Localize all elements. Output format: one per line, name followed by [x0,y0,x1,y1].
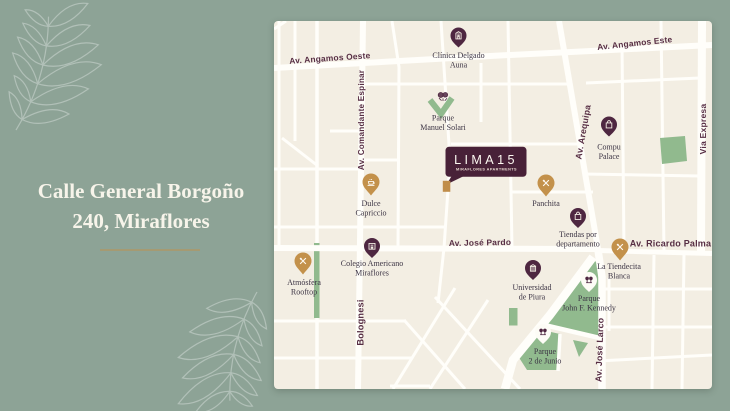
svg-text:Av. Ricardo Palma: Av. Ricardo Palma [630,239,712,249]
svg-text:Capriccio: Capriccio [355,208,386,217]
svg-text:Miraflores: Miraflores [355,268,389,277]
svg-text:Auna: Auna [450,60,468,69]
svg-text:Manuel Solari: Manuel Solari [420,123,466,132]
svg-text:Colegio Americano: Colegio Americano [341,259,403,268]
svg-text:Av. José Pardo: Av. José Pardo [449,237,512,248]
svg-text:Compu: Compu [597,143,621,152]
svg-text:Universidad: Universidad [512,283,551,292]
svg-text:Rooftop: Rooftop [291,287,317,296]
svg-text:departamento: departamento [556,239,600,248]
svg-text:Parque: Parque [432,114,455,123]
svg-text:Parque: Parque [534,347,557,356]
svg-text:Blanca: Blanca [608,271,631,280]
svg-text:Clínica Delgado: Clínica Delgado [432,51,484,60]
svg-text:Parque: Parque [578,294,601,303]
svg-text:Tiendas por: Tiendas por [559,230,597,239]
svg-text:2 de Junio: 2 de Junio [529,356,562,365]
svg-text:La Tiendecita: La Tiendecita [597,262,641,271]
svg-text:Dulce: Dulce [361,199,381,208]
svg-text:de Piura: de Piura [519,292,546,301]
svg-text:Atmósfera: Atmósfera [287,278,321,287]
svg-text:LIMA15: LIMA15 [454,153,518,167]
svg-text:Bolognesi: Bolognesi [356,299,366,345]
svg-text:Panchita: Panchita [532,199,560,208]
svg-text:Palace: Palace [599,152,620,161]
svg-text:John F. Kennedy: John F. Kennedy [562,303,616,312]
svg-text:Av. Comandante Espinar: Av. Comandante Espinar [357,69,366,170]
svg-text:Via Expresa: Via Expresa [698,104,708,155]
svg-text:MIRAFLORES APARTMENTS: MIRAFLORES APARTMENTS [456,168,517,172]
